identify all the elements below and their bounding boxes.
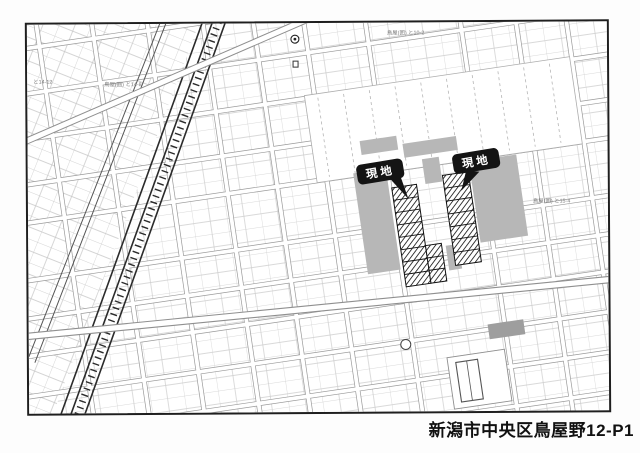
map-frame: と14-12 鳥屋(囲) と10-2 鳥屋(囲) と14-8 鳥屋(囲) と15… [25,19,611,416]
public-building-circle-icon [293,61,298,67]
school-symbol-icon [401,339,411,349]
area-label: 鳥屋(囲) と10-2 [387,28,425,36]
route-shield-icon [291,35,299,43]
shaded-block [422,157,442,184]
area-label: 鳥屋(囲) と15-4 [533,196,571,204]
map-caption: 新潟市中央区鳥屋野12-P1 [429,416,634,441]
map-canvas: と14-12 鳥屋(囲) と10-2 鳥屋(囲) と14-8 鳥屋(囲) と15… [27,21,609,414]
area-label: 鳥屋(囲) と14-8 [104,80,142,88]
scanned-map-page: と14-12 鳥屋(囲) と10-2 鳥屋(囲) と14-8 鳥屋(囲) と15… [0,0,640,453]
large-building-parcel [447,349,512,409]
area-label: と14-12 [33,79,52,86]
